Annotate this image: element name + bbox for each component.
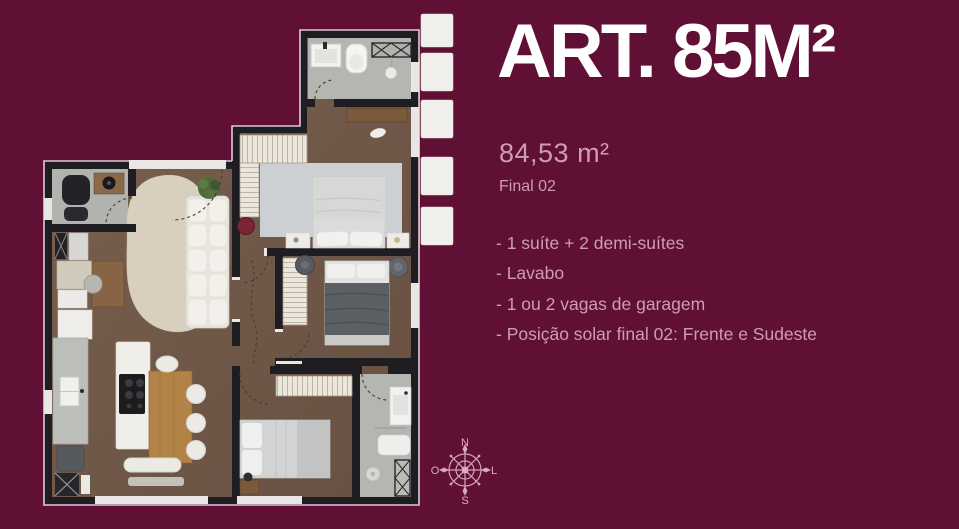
entry-pouf [238, 218, 255, 235]
chair [156, 356, 178, 372]
feature-list: - 1 suíte + 2 demi-suítes - Lavabo - 1 o… [496, 228, 817, 350]
cabinet [69, 233, 88, 260]
area-label: 84,53 m² [499, 138, 610, 169]
feature-item: - 1 suíte + 2 demi-suítes [496, 228, 817, 258]
pillow [327, 264, 355, 278]
chair [187, 414, 206, 433]
chair [187, 385, 206, 404]
page-title: ART. 85M² [497, 14, 833, 90]
pillow [350, 231, 382, 246]
stool [57, 446, 84, 471]
compass-rose-icon: N S O L [421, 431, 509, 509]
chair [187, 441, 206, 460]
compass-east-label: L [491, 465, 497, 477]
compass-south-label: S [461, 495, 468, 507]
faucet [80, 389, 84, 393]
lounge-chair [62, 175, 90, 205]
cabinet [58, 290, 87, 308]
pillow [317, 231, 348, 246]
feature-item: - Lavabo [496, 258, 817, 288]
demi1-closet [276, 376, 352, 396]
shower-glass [372, 43, 411, 57]
shower-door [395, 460, 410, 496]
faucet [323, 42, 327, 49]
entry-door [129, 160, 226, 169]
slide-background: ART. 85M² 84,53 m² Final 02 - 1 suíte + … [0, 0, 959, 529]
pillow [242, 450, 262, 475]
compass-north-label: N [461, 437, 469, 449]
faucet [404, 391, 408, 395]
feature-item: - Posição solar final 02: Frente e Sudes… [496, 319, 817, 349]
dining-table [149, 371, 192, 463]
pillow [242, 423, 262, 448]
feature-item: - 1 ou 2 vagas de garagem [496, 289, 817, 319]
unit-label: Final 02 [499, 178, 556, 196]
floor-plan [0, 0, 480, 529]
shower-bench [378, 435, 410, 455]
suite-closet-side [240, 163, 259, 217]
table-lamp [244, 473, 253, 482]
nightstand [240, 480, 259, 494]
pillow [357, 264, 385, 278]
cabinet [58, 310, 92, 339]
compass-west-label: O [431, 465, 440, 477]
bench [124, 458, 181, 472]
suite-closet-top [240, 135, 307, 163]
blanket [297, 420, 330, 478]
kitchen-rug [128, 477, 184, 486]
suite-dresser [347, 108, 407, 122]
plant [198, 177, 220, 199]
facade-louvers [414, 14, 453, 248]
